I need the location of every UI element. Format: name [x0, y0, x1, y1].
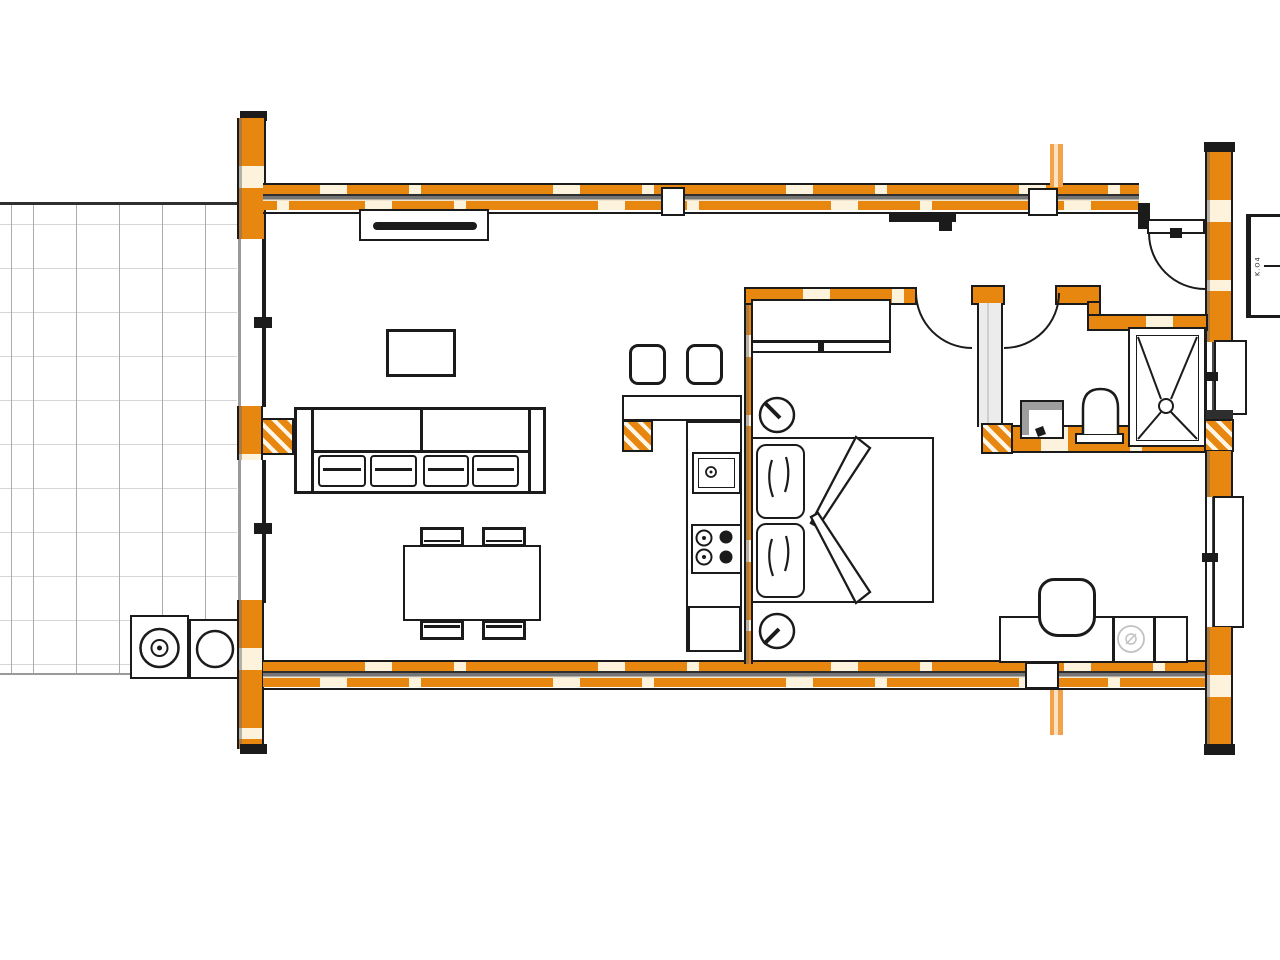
grill-burner-large-dot — [157, 646, 162, 651]
grill-burner-small — [197, 631, 233, 667]
pillow-1-crease-a — [769, 460, 773, 497]
pillow-2-crease-a — [769, 539, 773, 576]
cooktop-burner-br — [720, 551, 733, 564]
pillow-2-crease-b — [785, 536, 788, 571]
detail-overlay — [0, 0, 1280, 960]
toilet-base — [1076, 434, 1123, 443]
washbasin-tap — [1035, 426, 1046, 437]
floor-plan-canvas: K.O4 — [0, 0, 1280, 960]
kitchen-sink-drain-dot — [710, 471, 713, 474]
cooktop-burner-tr — [720, 531, 733, 544]
cooktop-burner-bl-dot — [702, 555, 706, 559]
shower-line-bl — [1138, 412, 1161, 439]
shower-drain — [1159, 399, 1173, 413]
duvet-fold-upper — [811, 437, 870, 527]
toilet-bowl — [1083, 389, 1118, 434]
duvet-fold-lower — [811, 513, 870, 603]
shower-line-br — [1171, 412, 1197, 439]
shower-line-tr — [1171, 337, 1197, 399]
cooktop-burner-tl-dot — [702, 536, 706, 540]
shower-line-tl — [1138, 337, 1161, 399]
pillow-1-crease-b — [785, 457, 788, 492]
